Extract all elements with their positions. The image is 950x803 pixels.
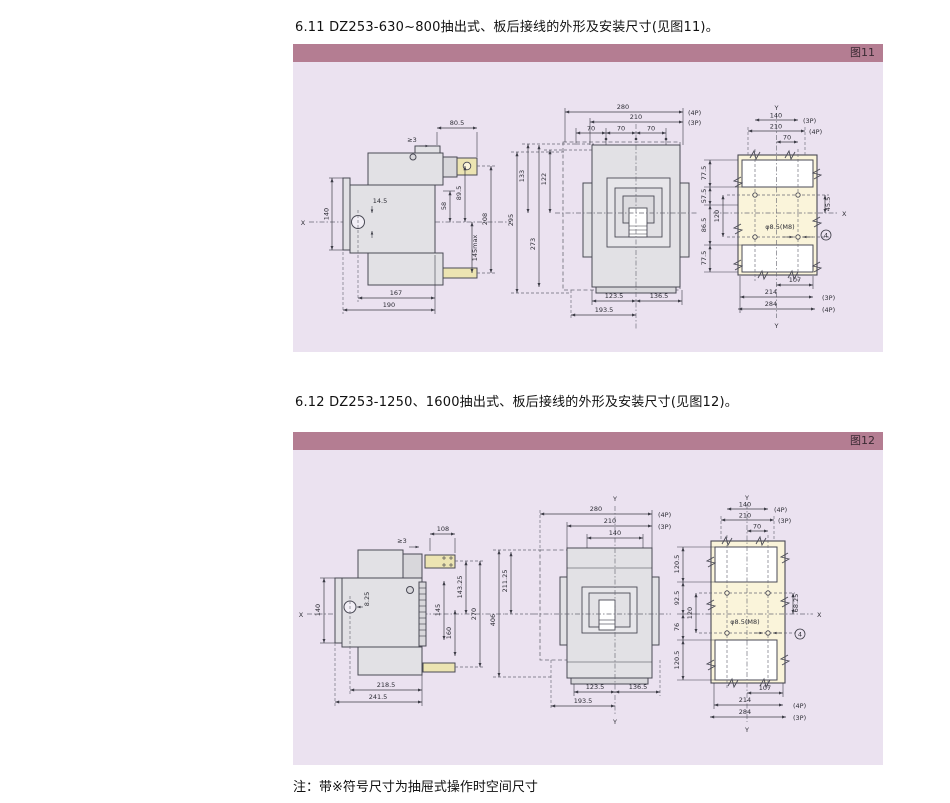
mounting-hole [766,631,770,635]
figure11-drawing: X 80.5 ≥3 140 14.5 [293,62,883,352]
dim-label: 210 [770,123,782,131]
dim-label: 214 [765,288,777,296]
dim-label: 208 [481,213,489,225]
figure11-panel: 图11 X 80.5 ≥3 [293,44,883,352]
pole-count-label: (3P) [658,523,671,531]
mounting-hole [725,591,729,595]
mounting-hole [725,631,729,635]
pole-count-label: (3P) [803,117,816,125]
pole-count-label: (4P) [774,506,787,514]
pole-count-label: (4P) [658,511,671,519]
dim-label: 280 [617,103,629,111]
dim-label: 145max [471,235,479,262]
mounting-hole [766,591,770,595]
dim-label: 123.5 [586,683,605,691]
dim-label: 140 [770,112,782,120]
terminal-hole [463,162,471,170]
dim-label: 92.5 [673,591,681,605]
y-axis-label: Y [744,726,749,734]
dim-label: 210 [630,113,642,121]
fig12-front-view: Y Y 280 (4P) 210 (3P) 140 123.5 136.5 19… [533,495,671,726]
dim-label: 140 [609,529,621,537]
dim-label: 89.5 [455,186,463,200]
operating-handle [629,208,647,237]
dim-label: 136.5 [650,292,669,300]
dim-label: 211.25 [501,570,509,593]
dim-label: 68.25 [792,594,800,613]
dim-label: 241.5 [369,693,388,701]
section-title-6-11: 6.11 DZ253-630~800抽出式、板后接线的外形及安装尺寸(见图11)… [295,16,719,35]
dim-label: 193.5 [595,306,614,314]
dim-label: 218.5 [377,681,396,689]
dim-label: 190 [383,301,395,309]
mounting-hole [753,235,757,239]
fig11-front-view: 280 (4P) 210 (3P) 70 70 70 123.5 136.5 1… [555,103,701,330]
dim-label: 107 [759,684,771,692]
qty-label: 4 [798,631,802,639]
footnote: 注：带※符号尺寸为抽屉式操作时空间尺寸 [293,776,538,795]
figure12-drawing: X 8.25 [293,450,883,765]
dim-label: 14.5 [373,197,387,205]
dim-label: 193.5 [574,697,593,705]
dim-label: 210 [739,512,751,520]
fig12-side-view: X 8.25 [299,525,505,706]
mounting-hole [796,235,800,239]
pole-count-label: (4P) [688,109,701,117]
dim-label: 107 [789,276,801,284]
dim-label: 76 [673,623,681,631]
dim-label: 140 [739,501,751,509]
dim-label: 108 [437,525,449,533]
fig12-height-dims: 406 211.25 [489,550,553,677]
dim-label: 120.5 [673,651,681,670]
figure12-header-bar: 图12 [293,432,883,450]
fig12-cutout-view: Y Y X 140 (4P) 210 (3P) 70 120.5 92.5 76 [673,494,822,734]
pole-count-label: (3P) [778,517,791,525]
y-axis-label: Y [774,322,779,330]
dim-label: 122 [540,173,548,185]
operating-handle [599,600,615,630]
mounting-hole [753,193,757,197]
dim-label: 70 [753,523,761,531]
dim-label: 210 [604,517,616,525]
dim-label: 160 [445,627,453,639]
x-axis-label: X [842,210,847,218]
y-axis-label: Y [612,718,617,726]
fig11-side-view: X 80.5 ≥3 140 14.5 [301,119,511,314]
y-axis-label: Y [612,495,617,503]
dim-label: 406 [489,614,497,626]
figure11-tag: 图11 [850,46,875,59]
dim-label: 167 [390,289,402,297]
dim-label: 140 [314,604,322,616]
dim-label: 70 [783,134,791,142]
dim-label: 133 [518,170,526,182]
dim-label: 270 [470,608,478,620]
dim-label: 295 [507,214,515,226]
hole-spec-label: φ8.5(M8) [730,618,759,626]
dim-label: 77.5 [700,166,708,180]
dim-label: 136.5 [629,683,648,691]
x-axis-label: X [301,219,306,227]
dim-label: 123.5 [605,292,624,300]
dim-label: 284 [739,708,751,716]
dim-label: 143.25 [456,576,464,599]
dim-label: 58 [440,202,448,210]
x-axis-label: X [299,611,304,619]
mounting-hole [796,193,800,197]
page: { "page": { "section1_title": "6.11 DZ25… [0,0,950,803]
section-title-6-12: 6.12 DZ253-1250、1600抽出式、板后接线的外形及安装尺寸(见图1… [295,391,738,410]
pole-count-label: (3P) [793,714,806,722]
dim-label: 70 [617,125,625,133]
dim-label: ≥3 [397,537,407,545]
figure11-drawing-area: X 80.5 ≥3 140 14.5 [293,62,883,352]
dim-label: 120.5 [673,555,681,574]
qty-label: 4 [824,232,828,240]
dim-label: 145 [434,604,442,616]
dim-label: 70 [587,125,595,133]
dim-label: ≥3 [407,136,417,144]
pole-count-label: (4P) [793,702,806,710]
dim-label: 120 [713,210,721,222]
dim-label: 45.5 [824,197,832,211]
dim-label: 140 [323,208,331,220]
pole-count-label: (3P) [822,294,835,302]
figure11-header-bar: 图11 [293,44,883,62]
dim-label: 273 [529,238,537,250]
dim-label: 70 [647,125,655,133]
dim-label: 284 [765,300,777,308]
fig11-cutout-view: Y Y X 140 (3P) 210 (4P) 70 77.5 57.5 86.… [700,104,847,330]
dim-label: 8.25 [363,592,371,606]
dim-label: 80.5 [450,119,464,127]
figure12-tag: 图12 [850,434,875,447]
figure12-drawing-area: X 8.25 [293,450,883,765]
dim-label: 214 [739,696,751,704]
pole-count-label: (4P) [822,306,835,314]
dim-label: 280 [590,505,602,513]
dim-label: 57.5 [700,189,708,203]
dim-label: 86.5 [700,218,708,232]
dim-label: 120 [686,607,694,619]
pole-count-label: (4P) [809,128,822,136]
dim-label: 77.5 [700,251,708,265]
hole-spec-label: φ8.5(M8) [765,223,794,231]
x-axis-label: X [817,611,822,619]
pole-count-label: (3P) [688,119,701,127]
figure12-panel: 图12 X [293,432,883,765]
